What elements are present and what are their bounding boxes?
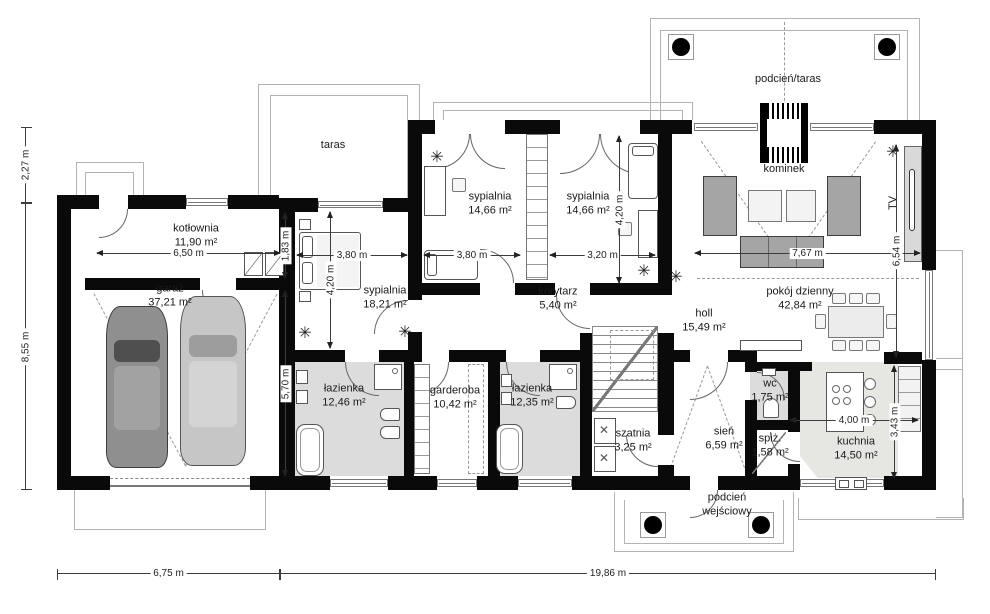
dining-chair — [849, 293, 863, 304]
burner — [843, 397, 851, 405]
plant-icon: ✳ — [430, 147, 443, 167]
plant-icon: ✳ — [669, 267, 682, 287]
sink-bowl — [854, 480, 864, 488]
door-arc — [99, 209, 128, 238]
room-label-sypialnia-3: sypialnia 14,66 m² — [566, 190, 609, 218]
wall — [279, 476, 330, 490]
tv-screen — [909, 169, 915, 231]
room-name: łazienka — [510, 382, 553, 396]
room-area: 15,49 m² — [682, 321, 725, 335]
wall — [250, 476, 279, 490]
sliding-terrace-door — [318, 201, 383, 208]
car — [106, 306, 168, 468]
room-name: garderoba — [430, 384, 480, 398]
room-label-szatnia: szatnia 3,25 m² — [614, 427, 651, 455]
room-name: łazienka — [322, 382, 365, 396]
window — [518, 479, 572, 487]
wall — [728, 350, 757, 362]
staircase-upper-flight — [610, 330, 654, 380]
column — [668, 34, 694, 60]
bathtub — [496, 424, 523, 474]
room-label-garderoba: garderoba 10,42 m² — [430, 384, 480, 412]
coffee-table — [786, 190, 816, 222]
wall — [408, 120, 422, 300]
bar-stool — [864, 378, 876, 390]
bathtub — [296, 424, 324, 476]
dimension-bottom-right: 19,86 m — [280, 573, 936, 574]
room-area: 12,46 m² — [322, 396, 365, 410]
room-area: 14,66 m² — [468, 204, 511, 218]
room-area: 1,58 m² — [751, 446, 788, 460]
kitchen-terrace-outline-v — [936, 358, 963, 518]
desk — [638, 210, 658, 258]
bathtub-inner — [300, 428, 320, 472]
tv-cabinet — [904, 146, 922, 262]
entry-porch-outline-inner — [85, 172, 134, 195]
room-area: 37,21 m² — [148, 296, 191, 310]
sink-bowl — [839, 480, 849, 488]
wall — [505, 120, 560, 134]
wall — [788, 464, 800, 476]
room-label-sien: sień 6,59 m² — [705, 425, 742, 453]
room-name: sypialnia — [363, 284, 406, 298]
window — [694, 123, 758, 131]
szatnia-wardrobe: ✕ — [594, 418, 616, 444]
car-windshield — [189, 335, 237, 357]
bar-stool — [864, 396, 876, 408]
wall — [128, 195, 186, 209]
wall — [228, 195, 279, 209]
room-name: garaż — [148, 282, 191, 296]
wall — [658, 333, 674, 435]
wall — [388, 476, 437, 490]
room-area: 5,40 m² — [538, 299, 577, 313]
room-area: 14,66 m² — [566, 204, 609, 218]
wall — [658, 465, 674, 476]
column — [874, 34, 900, 60]
kitchen-terrace-outline-h — [798, 498, 964, 520]
window — [186, 198, 228, 206]
wall — [379, 350, 415, 362]
wall — [477, 476, 518, 490]
wall — [71, 195, 99, 209]
room-label-lazienka-1: łazienka 12,46 m² — [322, 382, 365, 410]
kitchen-sink-unit — [835, 477, 867, 490]
car-windshield — [114, 340, 160, 362]
nightstand — [299, 219, 311, 230]
label-text: podcień wejściowy — [691, 491, 763, 519]
room-name: kotłownia — [173, 222, 219, 236]
room-area: 14,50 m² — [834, 449, 877, 463]
window — [925, 270, 933, 360]
bidet — [380, 426, 400, 439]
wall — [57, 195, 71, 490]
wc-sink — [762, 368, 776, 376]
plant-icon: ✳ — [398, 322, 411, 342]
room-label-kotlownia: kotłownia 11,90 m² — [173, 222, 219, 250]
room-name: korytarz — [538, 285, 577, 299]
dining-table — [828, 306, 884, 338]
wall — [449, 350, 506, 362]
boiler — [244, 252, 263, 276]
bathtub-inner — [500, 428, 519, 470]
szatnia-wardrobe: ✕ — [594, 446, 616, 472]
room-label-sypialnia-1: sypialnia 18,21 m² — [363, 284, 406, 312]
dimension-sypialnia3-width: 3,20 m — [550, 255, 655, 256]
wall — [658, 134, 672, 283]
dimension-left-main: 8,55 m — [25, 203, 26, 490]
pillow — [302, 262, 313, 284]
dimension-kuchnia-height: 3,43 m — [894, 366, 895, 478]
car-roof — [189, 361, 237, 427]
loveseat — [827, 176, 861, 236]
window — [810, 123, 874, 131]
wall — [884, 352, 922, 364]
dimension-sypialnia1-height: 4,20 m — [330, 212, 331, 348]
dimension-left-top: 2,27 m — [25, 127, 26, 203]
shower-drain — [392, 368, 398, 374]
room-label-spiz: spiż. 1,58 m² — [751, 432, 788, 460]
wall — [57, 476, 110, 490]
room-name: sypialnia — [468, 190, 511, 204]
room-name: holl — [682, 307, 725, 321]
room-name: spiż. — [751, 432, 788, 446]
room-area: 3,25 m² — [614, 441, 651, 455]
wall — [572, 476, 690, 490]
room-area: 18,21 m² — [363, 298, 406, 312]
label-podcien-wejsciowy: podcień wejściowy — [691, 491, 763, 519]
door-arc — [690, 362, 728, 400]
label-kominek: kominek — [764, 163, 805, 177]
wall — [718, 476, 800, 490]
car-roof — [114, 366, 160, 430]
window — [437, 479, 477, 487]
room-area: 42,84 m² — [766, 299, 833, 313]
loveseat — [703, 176, 737, 236]
dimension-bottom-left: 6,75 m — [57, 573, 280, 574]
floor-plan: ✕ ✕ ✳ ✳ ✳ ✳ ✳ ✳ kotłownia 11,90 m² — [0, 0, 990, 614]
wall — [295, 350, 345, 362]
shower — [374, 364, 402, 390]
label-text: kominek — [764, 163, 805, 177]
french-door-arc — [560, 134, 600, 174]
burner — [832, 385, 840, 393]
room-name: sień — [705, 425, 742, 439]
dimension-sypialnia2-width: 3,80 m — [424, 255, 520, 256]
living-sight-line-h — [697, 278, 919, 279]
room-label-garaz: garaż 37,21 m² — [148, 282, 191, 310]
room-name: szatnia — [614, 427, 651, 441]
room-label-lazienka-2: łazienka 12,35 m² — [510, 382, 553, 410]
wall — [922, 120, 936, 270]
dining-chair — [832, 293, 846, 304]
dining-chair — [866, 293, 880, 304]
room-label-wc: wc 1,75 m² — [751, 377, 788, 405]
dimension-sypialnia3-height: 4,20 m — [619, 136, 620, 283]
single-bed — [628, 143, 658, 199]
room-area: 6,59 m² — [705, 439, 742, 453]
room-area: 12,35 m² — [510, 396, 553, 410]
washbasin — [296, 390, 308, 404]
label-text: TV — [887, 196, 901, 210]
room-name: kuchnia — [834, 435, 877, 449]
fireplace-hatch — [767, 147, 801, 163]
room-name: pokój dzienny — [766, 285, 833, 299]
desk-chair — [452, 178, 466, 192]
dimension-garaz-height: 5,70 m — [285, 291, 286, 476]
wall — [640, 120, 692, 134]
dining-chair — [832, 340, 846, 351]
plant-icon: ✳ — [298, 323, 311, 343]
pillow — [632, 146, 654, 156]
coffee-table — [748, 190, 782, 222]
driveway-outline — [74, 490, 266, 530]
room-name: wc — [751, 377, 788, 391]
nightstand — [299, 291, 311, 302]
window — [330, 479, 388, 487]
dining-chair — [815, 314, 826, 329]
label-taras: taras — [321, 139, 345, 153]
fireplace — [760, 103, 808, 163]
desk — [424, 166, 446, 216]
wall — [580, 333, 592, 476]
plant-icon: ✳ — [637, 261, 650, 281]
toilet — [556, 396, 576, 409]
label-text: podcień/taras — [755, 73, 821, 87]
fireplace-hatch — [767, 103, 801, 119]
garage-door — [110, 478, 250, 487]
room-label-pokoj-dzienny: pokój dzienny 42,84 m² — [766, 285, 833, 313]
column — [640, 512, 666, 538]
garderoba-shelf — [468, 364, 484, 474]
dimension-pokoj-height: 6,54 m — [896, 145, 897, 357]
french-door-arc — [470, 134, 505, 169]
label-podcien-taras: podcień/taras — [755, 73, 821, 87]
wall — [422, 120, 435, 134]
dimension-kotlownia-height: 1,83 m — [285, 213, 286, 278]
wall — [404, 362, 414, 476]
garderoba-closet — [414, 364, 430, 474]
room-name: sypialnia — [566, 190, 609, 204]
burner — [843, 385, 851, 393]
side-terrace-outline-right — [936, 250, 963, 370]
dining-chair — [849, 340, 863, 351]
label-text: taras — [321, 139, 345, 153]
washbasin — [296, 370, 308, 384]
wall — [383, 198, 410, 212]
dimension-sypialnia1-width: 3,80 m — [297, 255, 407, 256]
room-label-sypialnia-2: sypialnia 14,66 m² — [468, 190, 511, 218]
wall — [590, 283, 672, 295]
shower-drain — [567, 368, 573, 374]
sideboard — [740, 340, 802, 351]
dining-chair — [866, 340, 880, 351]
toilet — [380, 408, 400, 421]
room-label-korytarz: korytarz 5,40 m² — [538, 285, 577, 313]
wall — [236, 278, 279, 290]
car — [180, 296, 246, 466]
bedroom-roof-outline-inner — [443, 110, 683, 120]
room-label-holl: holl 15,49 m² — [682, 307, 725, 335]
dimension-pokoj-width: 7,67 m — [695, 253, 920, 254]
wall — [745, 362, 812, 371]
wall — [422, 283, 480, 295]
wall — [295, 198, 318, 212]
room-area: 10,42 m² — [430, 398, 480, 412]
wardrobe-between-bedrooms — [526, 134, 548, 280]
dimension-kotlownia-width: 6,50 m — [97, 253, 280, 254]
room-area: 1,75 m² — [751, 391, 788, 405]
room-label-kuchnia: kuchnia 14,50 m² — [834, 435, 877, 463]
wall — [922, 360, 936, 490]
label-tv: TV — [887, 196, 901, 210]
burner — [832, 397, 840, 405]
